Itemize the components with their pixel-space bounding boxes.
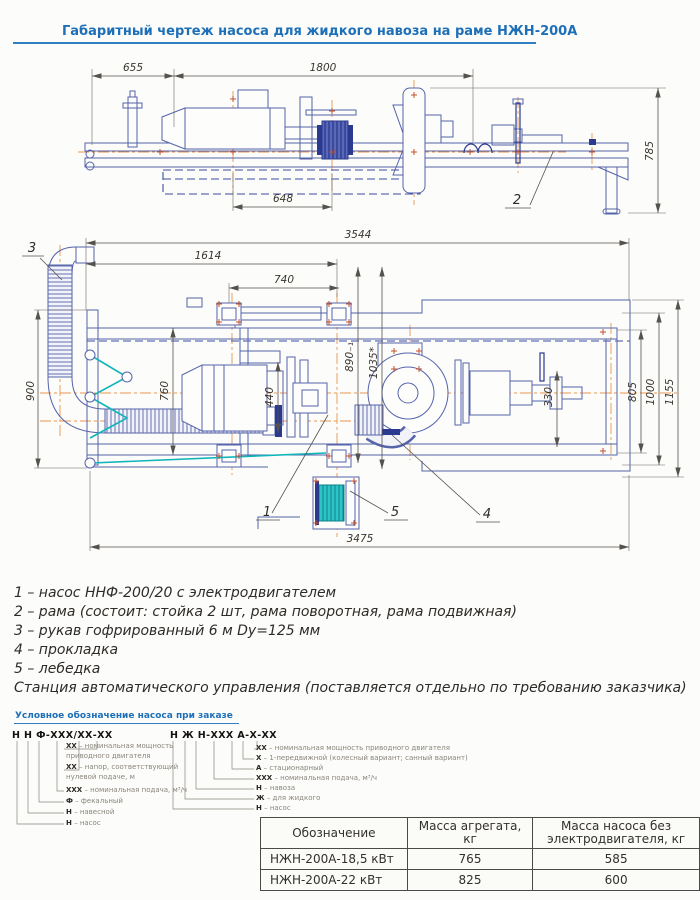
dim-890: 890₋₁ xyxy=(344,342,356,372)
designation-item: Ж – для жидкого xyxy=(256,794,320,804)
legend: 1 – насос ННФ-200/20 с электродвигателем… xyxy=(14,584,694,698)
dim-900: 900 xyxy=(25,381,37,401)
dim-760: 760 xyxy=(159,381,171,401)
legend-item: 1 – насос ННФ-200/20 с электродвигателем xyxy=(14,584,694,603)
designation-item: Н – насос xyxy=(256,804,291,814)
dim-740: 740 xyxy=(274,274,294,286)
part-label-4: 4 xyxy=(483,507,491,522)
part-label-3: 3 xyxy=(28,241,36,256)
designation-item: ХХ – номинальная мощность приводного дви… xyxy=(66,742,184,761)
cell-unit-mass: 765 xyxy=(407,849,532,870)
designation-item: А – стационарный xyxy=(256,764,323,774)
dim-648: 648 xyxy=(273,193,293,205)
legend-item: Станция автоматического управления (пост… xyxy=(14,679,694,698)
side-view-drawing: 655 1800 785 648 2 xyxy=(0,55,700,227)
designation-item: ХХ – номинальная мощность приводного дви… xyxy=(256,744,450,754)
side-coupling xyxy=(300,97,356,159)
cell-pump-mass: 600 xyxy=(533,870,700,891)
designation-item: Х – 1-передвижной (колесный вариант; сан… xyxy=(256,754,468,764)
part-label-5: 5 xyxy=(391,505,399,520)
table-row: НЖН-200А-18,5 кВт 765 585 xyxy=(261,849,700,870)
cell-designation: НЖН-200А-22 кВт xyxy=(261,870,408,891)
dim-785: 785 xyxy=(644,141,656,161)
dim-1614: 1614 xyxy=(195,250,222,262)
designation-item: Н – насос xyxy=(66,819,101,829)
dim-655: 655 xyxy=(123,62,143,74)
side-pivot-plate xyxy=(393,88,453,193)
side-drive-assembly xyxy=(464,99,596,163)
side-mast xyxy=(123,91,142,147)
col-header-unit-mass: Масса агрегата, кг xyxy=(407,818,532,849)
designation-item: Н – навоза xyxy=(256,784,295,794)
dim-1800: 1800 xyxy=(310,62,337,74)
designation-item: ХХХ – номинальная подача, м³/ч xyxy=(66,786,206,796)
dim-805: 805 xyxy=(627,382,639,402)
drawing-sheet: Габаритный чертеж насоса для жидкого нав… xyxy=(0,0,700,900)
dim-1155: 1155 xyxy=(664,378,676,405)
legend-item: 5 – лебедка xyxy=(14,660,694,679)
legend-item: 2 – рама (состоит: стойка 2 шт, рама пов… xyxy=(14,603,694,622)
designation-item: Ф – фекальный xyxy=(66,797,123,807)
designation-item: ХХ – напор, соответствующий нулевой пода… xyxy=(66,763,184,782)
side-subframe xyxy=(163,170,420,194)
dim-330: 330 xyxy=(543,387,555,407)
side-label-frame: 2 xyxy=(505,152,553,208)
dim-1000: 1000 xyxy=(645,378,657,405)
dim-3475: 3475 xyxy=(347,533,374,545)
cell-designation: НЖН-200А-18,5 кВт xyxy=(261,849,408,870)
col-header-pump-mass: Масса насоса без электродвигателя, кг xyxy=(533,818,700,849)
cell-unit-mass: 825 xyxy=(407,870,532,891)
legend-item: 3 – рукав гофрированный 6 м Dу=125 мм xyxy=(14,622,694,641)
part-label-1: 1 xyxy=(263,505,271,520)
cell-pump-mass: 585 xyxy=(533,849,700,870)
col-header-designation: Обозначение xyxy=(261,818,408,849)
ordering-heading: Условное обозначение насоса при заказе xyxy=(14,711,239,724)
table-row: НЖН-200А-22 кВт 825 600 xyxy=(261,870,700,891)
table-header-row: Обозначение Масса агрегата, кг Масса нас… xyxy=(261,818,700,849)
plan-winch xyxy=(258,477,359,529)
designation-item: Н – навесной xyxy=(66,808,114,818)
page-title: Габаритный чертеж насоса для жидкого нав… xyxy=(13,24,536,44)
plan-view-drawing: 3544 1614 740 3475 900 760 890₋₁ 1035* 4… xyxy=(10,225,700,573)
legend-item: 4 – прокладка xyxy=(14,641,694,660)
part-label-2: 2 xyxy=(513,193,521,208)
dim-3544: 3544 xyxy=(345,229,372,241)
dim-440: 440 xyxy=(264,387,276,407)
designation-item: ХХХ – номинальная подача, м³/ч xyxy=(256,774,377,784)
dim-1035: 1035* xyxy=(368,347,380,379)
mass-table: Обозначение Масса агрегата, кг Масса нас… xyxy=(260,817,700,891)
side-motor xyxy=(162,90,322,149)
